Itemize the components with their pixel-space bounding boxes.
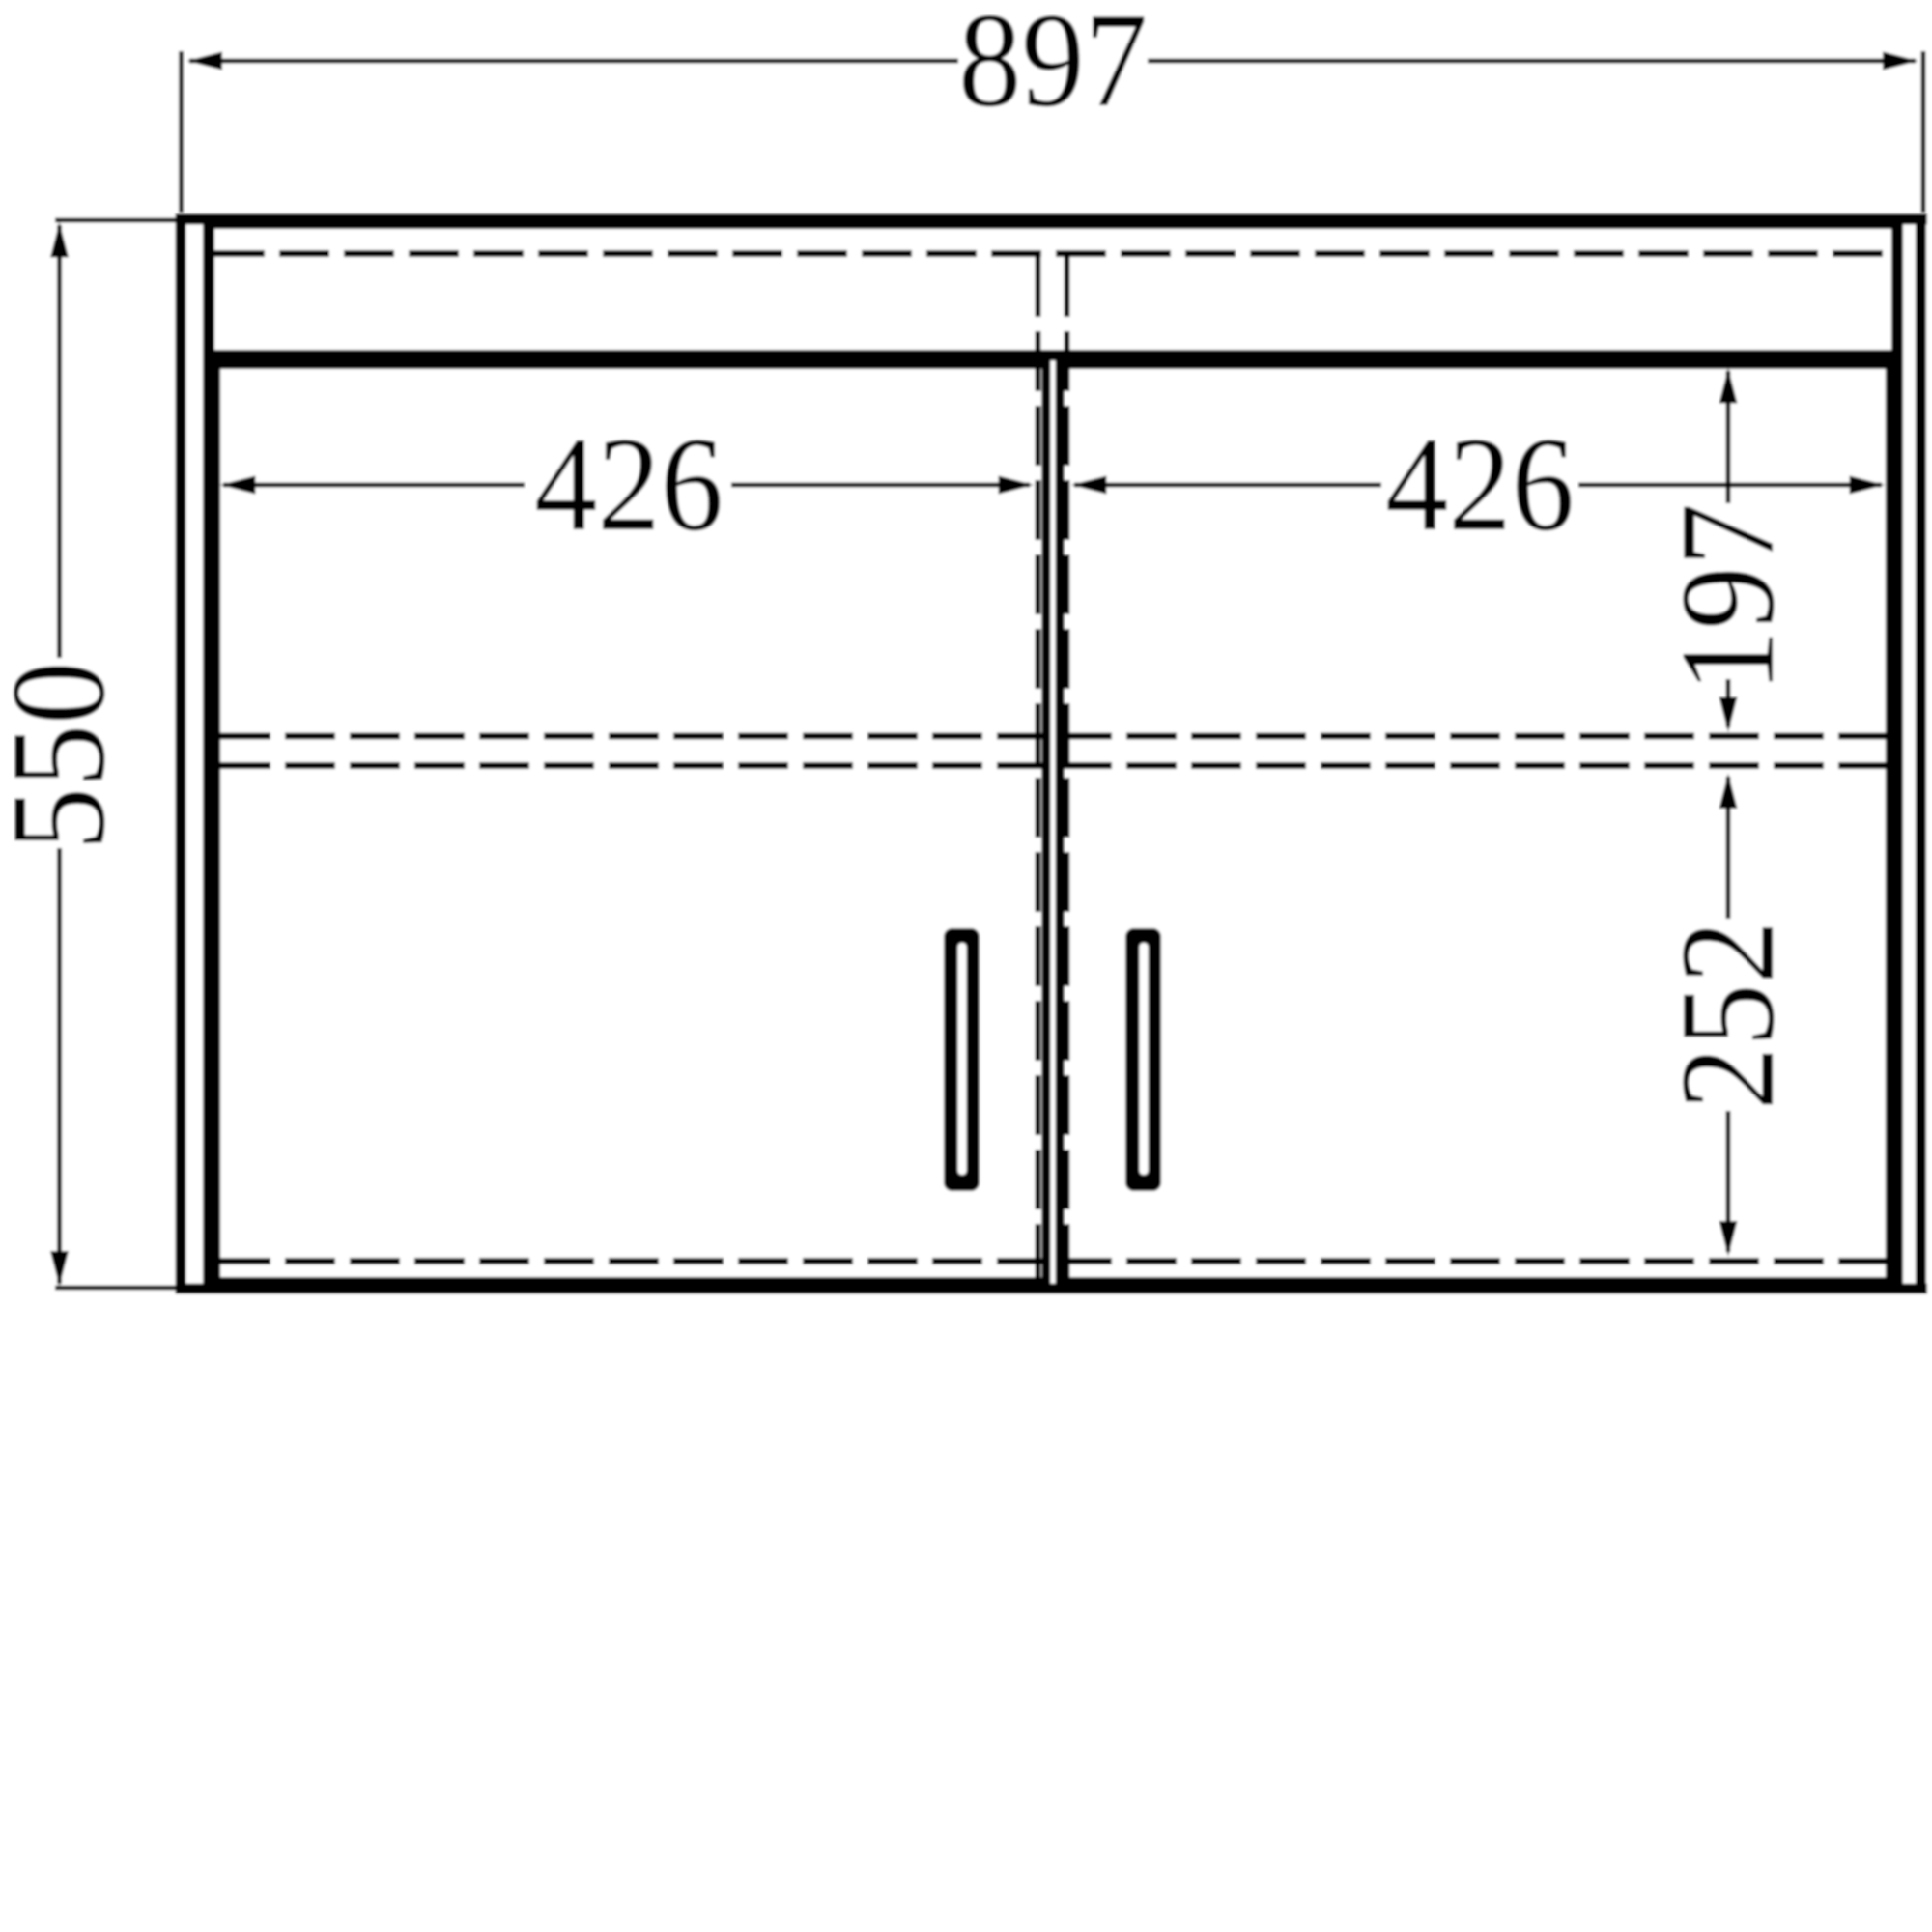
svg-text:550: 550 [0, 662, 133, 851]
svg-text:426: 426 [534, 410, 724, 559]
svg-text:426: 426 [1385, 410, 1575, 559]
svg-text:897: 897 [958, 0, 1148, 135]
svg-text:197: 197 [1653, 503, 1803, 693]
svg-text:252: 252 [1653, 921, 1803, 1110]
